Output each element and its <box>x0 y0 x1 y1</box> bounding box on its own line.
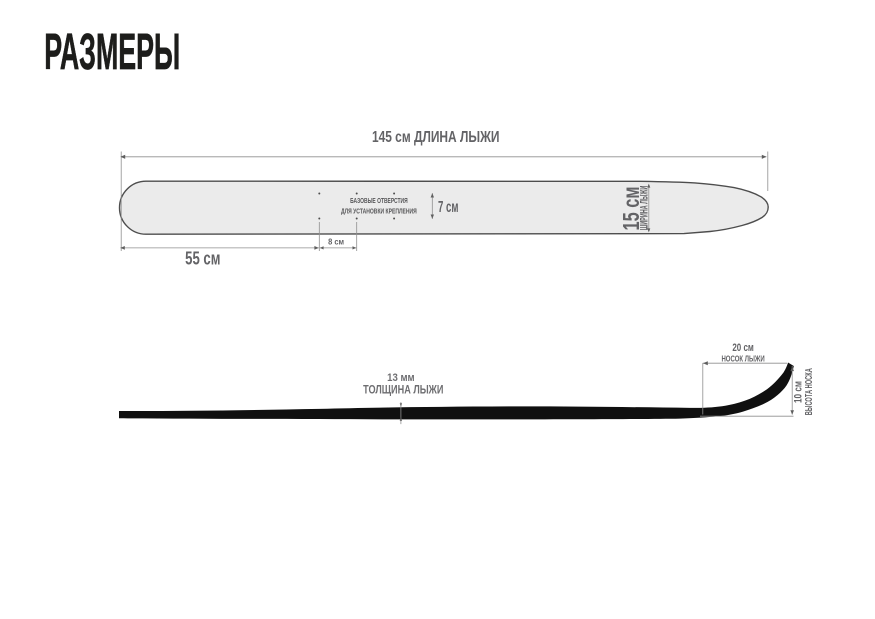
svg-text:ШИРИНА ЛЫЖИ: ШИРИНА ЛЫЖИ <box>638 186 650 231</box>
svg-text:ТОЛЩИНА ЛЫЖИ: ТОЛЩИНА ЛЫЖИ <box>363 383 443 397</box>
svg-text:145 см ДЛИНА ЛЫЖИ: 145 см ДЛИНА ЛЫЖИ <box>372 129 500 146</box>
svg-text:БАЗОВЫЕ ОТВЕРСТИЯ: БАЗОВЫЕ ОТВЕРСТИЯ <box>350 196 408 205</box>
svg-text:7 см: 7 см <box>438 199 459 216</box>
svg-text:РАЗМЕРЫ: РАЗМЕРЫ <box>44 23 180 80</box>
svg-text:55 см: 55 см <box>185 248 220 269</box>
svg-text:10 см: 10 см <box>793 381 805 403</box>
svg-text:НОСОК ЛЫЖИ: НОСОК ЛЫЖИ <box>721 353 764 363</box>
svg-text:ВЫСОТА НОСКА: ВЫСОТА НОСКА <box>804 368 815 415</box>
svg-text:20 см: 20 см <box>732 342 754 354</box>
svg-text:ДЛЯ УСТАНОВКИ КРЕПЛЕНИЯ: ДЛЯ УСТАНОВКИ КРЕПЛЕНИЯ <box>341 206 417 215</box>
svg-text:8 см: 8 см <box>328 237 344 247</box>
